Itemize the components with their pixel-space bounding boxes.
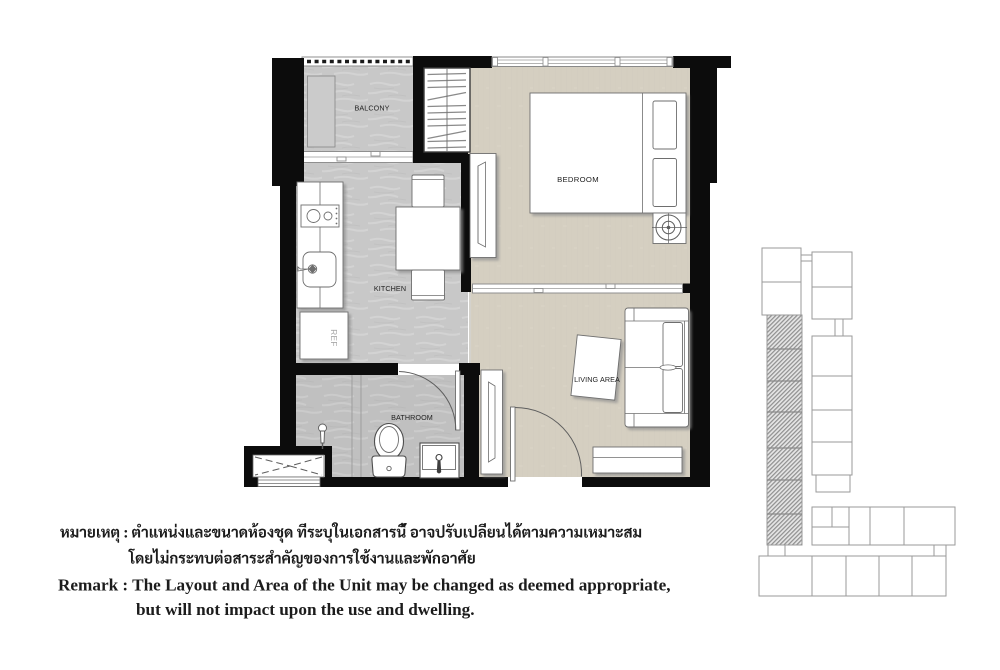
svg-text:KITCHEN: KITCHEN [374, 284, 406, 293]
svg-text:REF: REF [329, 329, 338, 347]
svg-text:BEDROOM: BEDROOM [557, 175, 599, 184]
svg-text:Remark : The Layout and Area o: Remark : The Layout and Area of the Unit… [58, 576, 671, 595]
svg-text:but will not impact upon the u: but will not impact upon the use and dwe… [136, 600, 475, 619]
svg-text:BATHROOM: BATHROOM [391, 413, 433, 422]
svg-text:LIVING AREA: LIVING AREA [574, 375, 620, 384]
svg-text:BALCONY: BALCONY [354, 104, 389, 113]
